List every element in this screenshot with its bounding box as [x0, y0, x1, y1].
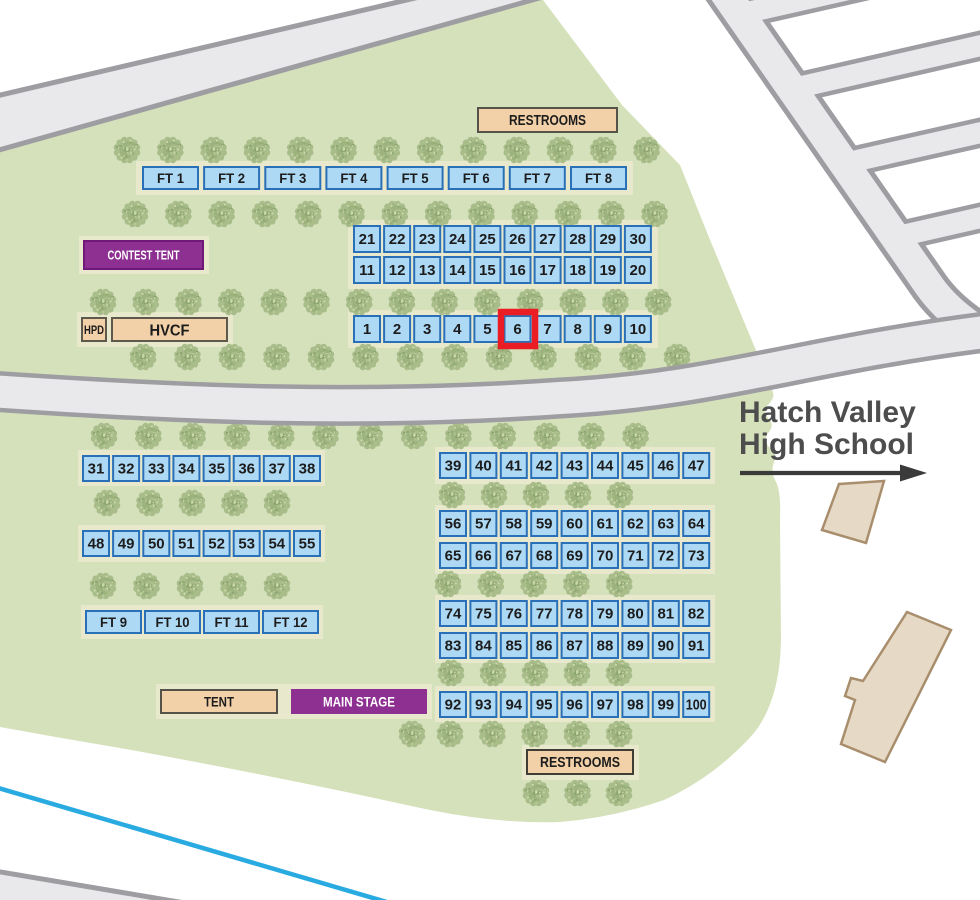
svg-text:FT 4: FT 4	[340, 170, 367, 186]
svg-text:53: 53	[238, 536, 255, 553]
svg-text:21: 21	[359, 231, 376, 248]
svg-text:44: 44	[597, 458, 614, 475]
svg-text:54: 54	[268, 536, 285, 553]
svg-text:90: 90	[657, 638, 674, 655]
svg-text:80: 80	[627, 606, 644, 623]
svg-text:51: 51	[178, 536, 195, 553]
svg-text:MAIN STAGE: MAIN STAGE	[323, 694, 395, 709]
svg-text:FT 5: FT 5	[402, 170, 429, 186]
svg-text:99: 99	[657, 697, 674, 714]
svg-text:FT 2: FT 2	[218, 170, 245, 186]
svg-text:FT 1: FT 1	[157, 170, 184, 186]
svg-text:86: 86	[536, 638, 553, 655]
svg-text:49: 49	[118, 536, 135, 553]
svg-text:75: 75	[475, 606, 492, 623]
svg-text:6: 6	[513, 321, 521, 338]
svg-text:19: 19	[599, 262, 616, 279]
svg-text:71: 71	[627, 548, 644, 565]
svg-text:31: 31	[88, 461, 105, 478]
svg-text:26: 26	[509, 231, 526, 248]
svg-text:HPD: HPD	[84, 323, 104, 337]
svg-text:RESTROOMS: RESTROOMS	[540, 755, 620, 771]
svg-text:61: 61	[597, 516, 614, 533]
svg-text:91: 91	[688, 638, 705, 655]
svg-text:67: 67	[505, 548, 522, 565]
svg-text:FT 10: FT 10	[156, 614, 190, 630]
svg-text:68: 68	[536, 548, 553, 565]
svg-text:46: 46	[657, 458, 674, 475]
svg-text:FT 7: FT 7	[524, 170, 551, 186]
svg-text:28: 28	[569, 231, 586, 248]
svg-text:41: 41	[505, 458, 522, 475]
svg-text:97: 97	[597, 697, 614, 714]
svg-text:High School: High School	[739, 428, 914, 461]
svg-text:85: 85	[505, 638, 522, 655]
svg-text:5: 5	[483, 321, 491, 338]
svg-text:34: 34	[178, 461, 195, 478]
svg-text:81: 81	[657, 606, 674, 623]
svg-text:88: 88	[597, 638, 614, 655]
svg-text:82: 82	[688, 606, 705, 623]
svg-text:60: 60	[566, 516, 583, 533]
svg-text:70: 70	[597, 548, 614, 565]
svg-text:18: 18	[569, 262, 586, 279]
svg-text:30: 30	[630, 231, 647, 248]
svg-text:38: 38	[299, 461, 316, 478]
svg-text:77: 77	[536, 606, 553, 623]
svg-text:12: 12	[389, 262, 406, 279]
svg-text:100: 100	[686, 697, 707, 714]
svg-text:15: 15	[479, 262, 496, 279]
svg-text:89: 89	[627, 638, 644, 655]
svg-text:7: 7	[543, 321, 551, 338]
svg-text:48: 48	[88, 536, 105, 553]
svg-text:32: 32	[118, 461, 135, 478]
svg-text:24: 24	[449, 231, 466, 248]
svg-text:CONTEST TENT: CONTEST TENT	[108, 248, 180, 263]
svg-text:92: 92	[445, 697, 462, 714]
svg-text:11: 11	[359, 262, 375, 279]
svg-text:17: 17	[539, 262, 556, 279]
svg-text:4: 4	[453, 321, 462, 338]
svg-text:69: 69	[566, 548, 583, 565]
svg-text:56: 56	[445, 516, 462, 533]
svg-text:35: 35	[208, 461, 225, 478]
svg-text:FT 6: FT 6	[463, 170, 490, 186]
svg-text:10: 10	[630, 321, 647, 338]
svg-text:55: 55	[299, 536, 316, 553]
svg-text:23: 23	[419, 231, 436, 248]
svg-text:84: 84	[475, 638, 492, 655]
svg-text:HVCF: HVCF	[150, 322, 190, 339]
svg-text:FT 11: FT 11	[215, 614, 249, 630]
svg-text:1: 1	[363, 321, 371, 338]
svg-text:59: 59	[536, 516, 553, 533]
svg-text:66: 66	[475, 548, 492, 565]
svg-text:96: 96	[566, 697, 583, 714]
svg-text:95: 95	[536, 697, 553, 714]
svg-text:57: 57	[475, 516, 492, 533]
svg-text:FT 3: FT 3	[279, 170, 306, 186]
svg-text:22: 22	[389, 231, 406, 248]
svg-text:79: 79	[597, 606, 614, 623]
svg-text:37: 37	[268, 461, 285, 478]
svg-text:64: 64	[688, 516, 705, 533]
svg-text:TENT: TENT	[204, 694, 234, 710]
svg-text:27: 27	[539, 231, 556, 248]
svg-text:RESTROOMS: RESTROOMS	[509, 113, 586, 129]
svg-text:93: 93	[475, 697, 492, 714]
svg-text:87: 87	[566, 638, 583, 655]
svg-text:40: 40	[475, 458, 492, 475]
svg-text:83: 83	[445, 638, 462, 655]
svg-text:13: 13	[419, 262, 436, 279]
svg-text:74: 74	[445, 606, 462, 623]
svg-text:29: 29	[599, 231, 616, 248]
svg-text:42: 42	[536, 458, 553, 475]
svg-text:FT 9: FT 9	[100, 614, 127, 630]
svg-text:2: 2	[393, 321, 401, 338]
svg-text:33: 33	[148, 461, 165, 478]
svg-text:72: 72	[657, 548, 674, 565]
svg-text:14: 14	[449, 262, 466, 279]
svg-text:9: 9	[604, 321, 612, 338]
svg-text:63: 63	[657, 516, 674, 533]
svg-text:47: 47	[688, 458, 705, 475]
svg-text:73: 73	[688, 548, 705, 565]
svg-text:94: 94	[505, 697, 522, 714]
svg-text:43: 43	[566, 458, 583, 475]
svg-text:8: 8	[574, 321, 582, 338]
svg-text:50: 50	[148, 536, 165, 553]
svg-text:25: 25	[479, 231, 496, 248]
svg-text:FT 12: FT 12	[274, 614, 308, 630]
svg-text:45: 45	[627, 458, 644, 475]
svg-text:98: 98	[627, 697, 644, 714]
svg-text:62: 62	[627, 516, 644, 533]
svg-text:Hatch Valley: Hatch Valley	[739, 396, 916, 429]
svg-text:58: 58	[505, 516, 522, 533]
svg-text:36: 36	[238, 461, 255, 478]
svg-text:78: 78	[566, 606, 583, 623]
svg-text:39: 39	[445, 458, 462, 475]
svg-text:20: 20	[630, 262, 647, 279]
svg-text:76: 76	[505, 606, 522, 623]
svg-text:16: 16	[509, 262, 526, 279]
svg-text:65: 65	[445, 548, 462, 565]
svg-text:52: 52	[208, 536, 225, 553]
svg-text:FT 8: FT 8	[585, 170, 612, 186]
svg-text:3: 3	[423, 321, 431, 338]
